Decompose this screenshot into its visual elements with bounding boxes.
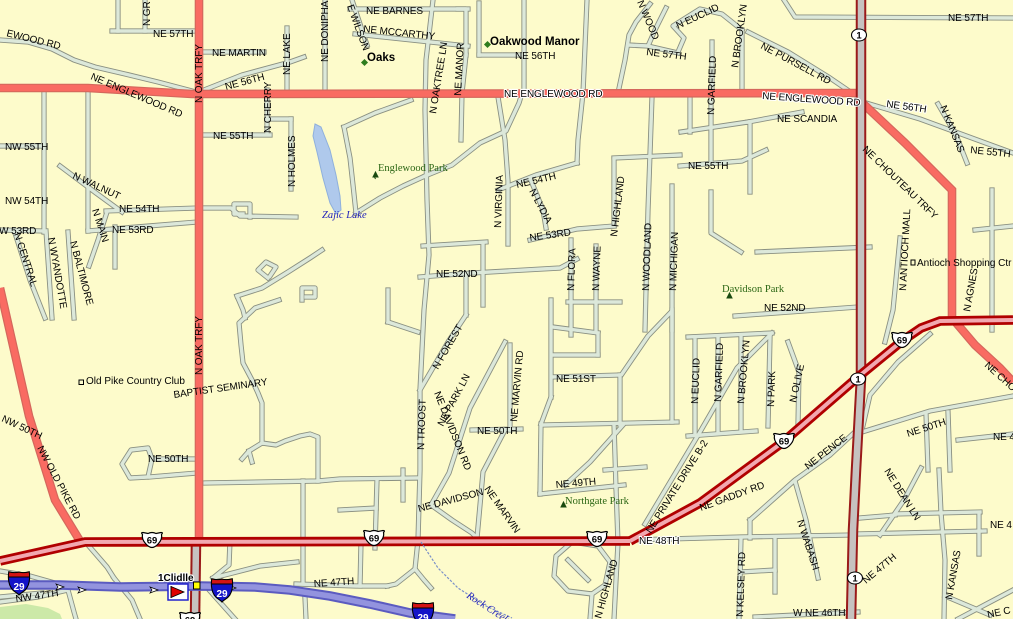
svg-text:Old Pike Country Club: Old Pike Country Club	[86, 376, 185, 387]
svg-text:Zajic Lake: Zajic Lake	[322, 210, 367, 221]
svg-text:N KELSEY RD: N KELSEY RD	[735, 552, 748, 617]
svg-text:NW 54TH: NW 54TH	[5, 196, 48, 207]
svg-text:NE 56TH: NE 56TH	[515, 51, 555, 62]
svg-text:69: 69	[147, 536, 158, 547]
svg-text:N VIRGINIA: N VIRGINIA	[493, 174, 506, 228]
svg-text:NE 54TH: NE 54TH	[119, 204, 159, 215]
svg-text:1Clidlle: 1Clidlle	[158, 573, 194, 584]
svg-text:NE 55TH: NE 55TH	[688, 161, 728, 172]
svg-text:NE 48TH: NE 48TH	[639, 536, 679, 547]
svg-text:NE 4: NE 4	[990, 520, 1012, 531]
svg-text:N WAYNE: N WAYNE	[591, 245, 604, 291]
svg-text:N HOLMES: N HOLMES	[287, 135, 298, 187]
svg-text:W NE 46TH: W NE 46TH	[793, 608, 845, 619]
svg-text:NE 57TH: NE 57TH	[153, 29, 193, 40]
svg-text:N GARFIELD: N GARFIELD	[706, 56, 719, 115]
svg-text:NE 50TH: NE 50TH	[148, 454, 188, 465]
svg-text:NE MARTIN: NE MARTIN	[212, 48, 266, 59]
svg-text:69: 69	[369, 534, 380, 545]
svg-text:N GR: N GR	[142, 1, 153, 26]
svg-text:NE 51ST: NE 51ST	[556, 374, 596, 385]
svg-text:Oakwood Manor: Oakwood Manor	[490, 36, 580, 48]
svg-text:NE 53RD: NE 53RD	[112, 225, 154, 236]
svg-text:NE LAKE: NE LAKE	[282, 33, 293, 75]
svg-text:Antioch Shopping Ctr: Antioch Shopping Ctr	[917, 258, 1012, 269]
svg-text:NE 52ND: NE 52ND	[764, 303, 806, 314]
svg-text:NE SCANDIA: NE SCANDIA	[777, 114, 838, 125]
svg-text:NE BARNES: NE BARNES	[366, 6, 423, 17]
svg-text:N FLORA: N FLORA	[566, 248, 578, 291]
svg-text:NE 4: NE 4	[993, 432, 1013, 443]
svg-text:NW 55TH: NW 55TH	[5, 142, 48, 153]
svg-text:69: 69	[779, 437, 790, 448]
svg-text:N EUCLID: N EUCLID	[690, 358, 703, 404]
svg-text:Englewood Park: Englewood Park	[378, 163, 448, 174]
svg-text:NE 52ND: NE 52ND	[436, 269, 478, 280]
svg-text:N MICHIGAN: N MICHIGAN	[668, 232, 681, 291]
svg-text:Davidson Park: Davidson Park	[722, 284, 785, 295]
svg-text:Northgate Park: Northgate Park	[565, 496, 630, 507]
svg-text:N TROOST: N TROOST	[416, 399, 429, 450]
svg-text:NE DONIPHAN: NE DONIPHAN	[320, 0, 331, 62]
svg-text:N OAK TRFY: N OAK TRFY	[194, 316, 205, 375]
svg-text:NE ENGLEWOOD RD: NE ENGLEWOOD RD	[504, 89, 603, 100]
svg-text:Oaks: Oaks	[367, 52, 395, 64]
svg-text:N OAK TRFY: N OAK TRFY	[194, 44, 205, 103]
svg-text:N CHERRY: N CHERRY	[263, 81, 274, 133]
svg-text:69: 69	[592, 535, 603, 546]
svg-text:N GARFIELD: N GARFIELD	[713, 343, 726, 402]
svg-text:NE 50TH: NE 50TH	[477, 426, 517, 437]
svg-text:NE 57TH: NE 57TH	[948, 13, 988, 24]
svg-text:N PARK: N PARK	[766, 370, 778, 407]
svg-text:69: 69	[185, 616, 196, 619]
svg-text:NE 55TH: NE 55TH	[213, 131, 253, 142]
svg-text:69: 69	[897, 336, 908, 347]
